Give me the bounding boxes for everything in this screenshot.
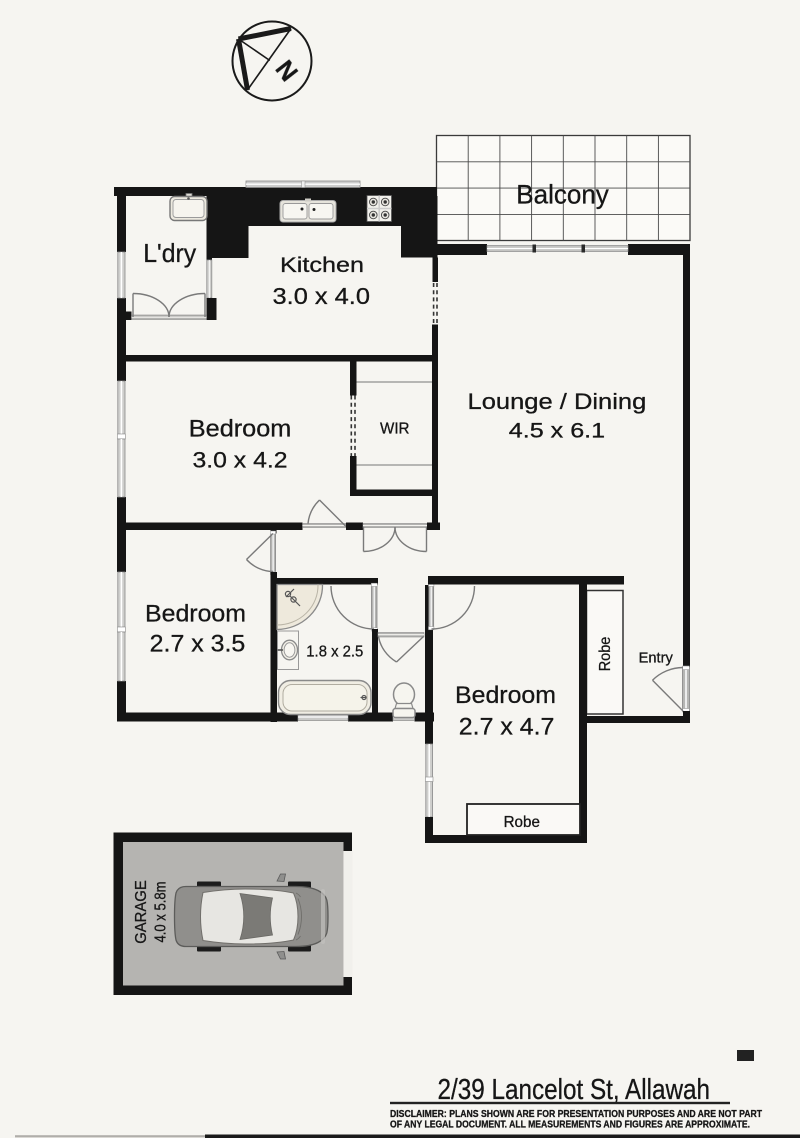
svg-text:GARAGE: GARAGE: [133, 880, 150, 944]
svg-text:Robe: Robe: [504, 814, 540, 831]
svg-text:3.0 x 4.0: 3.0 x 4.0: [273, 283, 371, 309]
svg-text:3.0 x 4.2: 3.0 x 4.2: [193, 448, 288, 473]
svg-text:Bedroom: Bedroom: [145, 600, 246, 627]
svg-text:2.7 x 3.5: 2.7 x 3.5: [150, 630, 246, 657]
svg-text:Robe: Robe: [597, 637, 614, 672]
svg-text:Bedroom: Bedroom: [455, 682, 556, 709]
svg-text:4.0 x 5.8m: 4.0 x 5.8m: [153, 882, 170, 943]
svg-text:L'dry: L'dry: [143, 238, 196, 268]
svg-text:WIR: WIR: [380, 421, 410, 438]
svg-text:Bedroom: Bedroom: [189, 415, 291, 442]
svg-text:4.5 x 6.1: 4.5 x 6.1: [509, 420, 605, 443]
svg-text:OF ANY LEGAL DOCUMENT. ALL MEA: OF ANY LEGAL DOCUMENT. ALL MEASUREMENTS …: [390, 1120, 750, 1131]
svg-text:DISCLAIMER: PLANS SHOWN ARE F: DISCLAIMER: PLANS SHOWN ARE FOR PRESENTA…: [390, 1109, 762, 1120]
svg-text:Entry: Entry: [639, 651, 674, 667]
svg-text:Kitchen: Kitchen: [280, 253, 364, 277]
svg-text:Lounge / Dining: Lounge / Dining: [468, 389, 647, 414]
svg-text:2.7 x 4.7: 2.7 x 4.7: [459, 714, 555, 741]
svg-text:Balcony: Balcony: [516, 180, 609, 210]
svg-text:2/39 Lancelot St, Allawah: 2/39 Lancelot St, Allawah: [438, 1074, 711, 1106]
svg-text:1.8 x 2.5: 1.8 x 2.5: [306, 644, 363, 661]
